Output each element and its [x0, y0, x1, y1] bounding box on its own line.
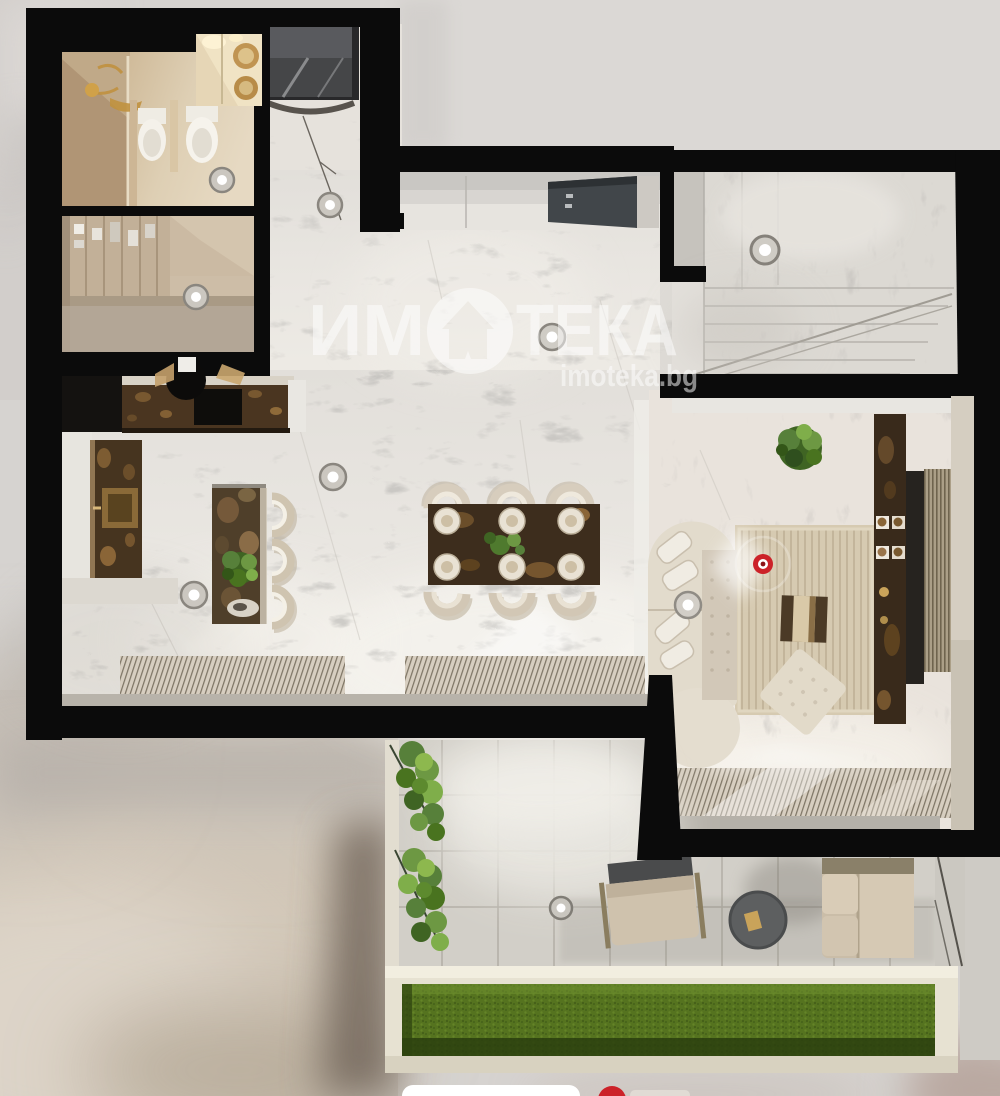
svg-text:ИМ: ИМ — [308, 291, 425, 371]
svg-text:imoteka.bg: imoteka.bg — [560, 358, 698, 393]
